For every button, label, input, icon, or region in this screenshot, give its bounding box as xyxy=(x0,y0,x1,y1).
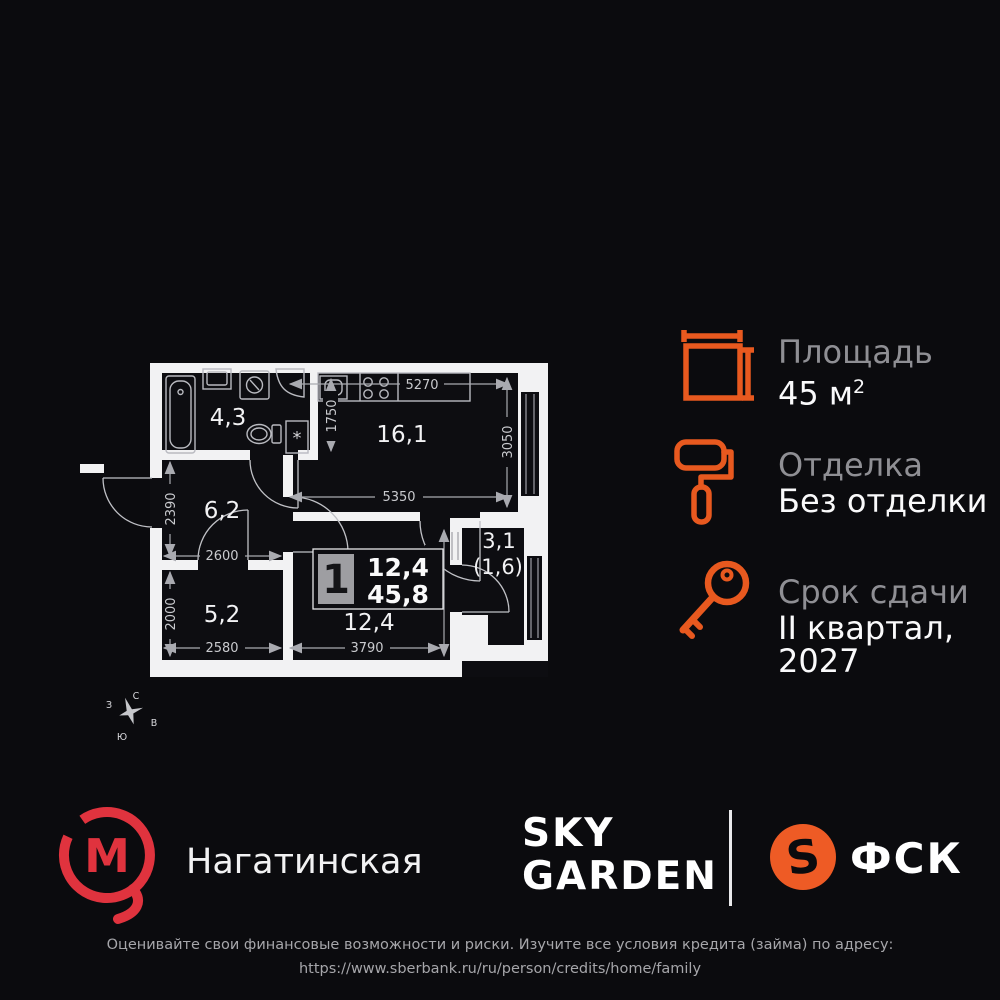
disclaimer-line2: https://www.sberbank.ru/ru/person/credit… xyxy=(0,957,1000,981)
room-area-bathroom: 4,3 xyxy=(210,405,247,431)
compass-rose: С В Ю З xyxy=(106,691,157,743)
metro-letter: М xyxy=(84,829,130,883)
disclaimer-line1: Оценивайте свои финансовые возможности и… xyxy=(0,933,1000,957)
deadline-value-line2: 2027 xyxy=(778,643,859,679)
room-area-balcony-coef: (1,6) xyxy=(473,555,523,579)
closet-mark: * xyxy=(293,428,302,449)
compass-n: С xyxy=(133,691,140,702)
deadline-label: Срок сдачи xyxy=(778,574,969,610)
room-area-bedroom: 5,2 xyxy=(204,602,241,628)
unit-badge: 1 12,4 45,8 xyxy=(313,549,443,609)
dim-right: 3050 xyxy=(501,425,516,458)
key-icon xyxy=(668,556,763,651)
finish-value: Без отделки xyxy=(778,483,987,519)
area-value-main: 45 м xyxy=(778,375,853,413)
badge-living-area: 12,4 xyxy=(367,553,429,582)
paint-roller-icon xyxy=(668,436,748,528)
developer-name: ФСК xyxy=(850,834,963,883)
compass-w: З xyxy=(106,700,112,711)
area-icon xyxy=(668,312,763,408)
deadline-value-line1: II квартал, xyxy=(778,610,954,646)
area-value-sup: 2 xyxy=(853,376,865,398)
metro-logo-icon: М xyxy=(50,790,170,930)
dim-hall-v: 2390 xyxy=(164,492,179,525)
developer-logo-icon: S xyxy=(766,820,840,894)
dim-bed-h: 2580 xyxy=(205,641,238,656)
dim-bath-side: 1750 xyxy=(325,399,340,432)
badge-total-area: 45,8 xyxy=(367,580,429,609)
ad-poster: * 5270 1750 xyxy=(0,0,1000,1000)
dim-top: 5270 xyxy=(405,378,438,393)
metro-station-name: Нагатинская xyxy=(186,842,423,882)
project-line2: GARDEN xyxy=(522,855,718,898)
project-logo: SKY GARDEN xyxy=(522,812,718,898)
logo-divider xyxy=(729,810,732,906)
area-value: 45 м2 xyxy=(778,369,865,412)
badge-rooms-count: 1 xyxy=(322,557,350,603)
room-area-balcony: 3,1 xyxy=(482,529,515,553)
dim-hall-h: 2600 xyxy=(205,549,238,564)
finish-label: Отделка xyxy=(778,447,923,483)
compass-e: В xyxy=(151,718,158,729)
room-area-room: 12,4 xyxy=(343,610,394,636)
area-label: Площадь xyxy=(778,334,933,370)
disclaimer: Оценивайте свои финансовые возможности и… xyxy=(0,933,1000,981)
room-area-hallway: 6,2 xyxy=(204,498,241,524)
dim-room-h: 3790 xyxy=(350,641,383,656)
dim-mid: 5350 xyxy=(382,490,415,505)
compass-s: Ю xyxy=(117,732,127,743)
floor-plan: * 5270 1750 xyxy=(75,330,575,760)
room-area-kitchen: 16,1 xyxy=(376,422,427,448)
dim-bed-v: 2000 xyxy=(164,597,179,630)
project-line1: SKY xyxy=(522,812,718,855)
